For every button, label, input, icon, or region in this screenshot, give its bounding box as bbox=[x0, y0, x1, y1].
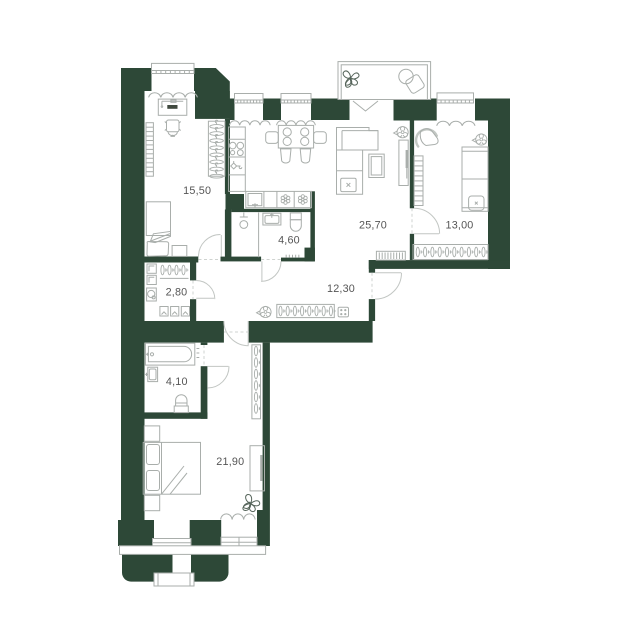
svg-text:4,10: 4,10 bbox=[166, 376, 188, 388]
svg-text:4,60: 4,60 bbox=[278, 235, 300, 247]
svg-text:21,90: 21,90 bbox=[216, 456, 244, 468]
svg-text:12,30: 12,30 bbox=[327, 283, 355, 295]
svg-text:15,50: 15,50 bbox=[183, 185, 211, 197]
svg-text:25,70: 25,70 bbox=[359, 220, 387, 232]
svg-text:2,80: 2,80 bbox=[166, 286, 188, 298]
svg-text:13,00: 13,00 bbox=[445, 220, 473, 232]
